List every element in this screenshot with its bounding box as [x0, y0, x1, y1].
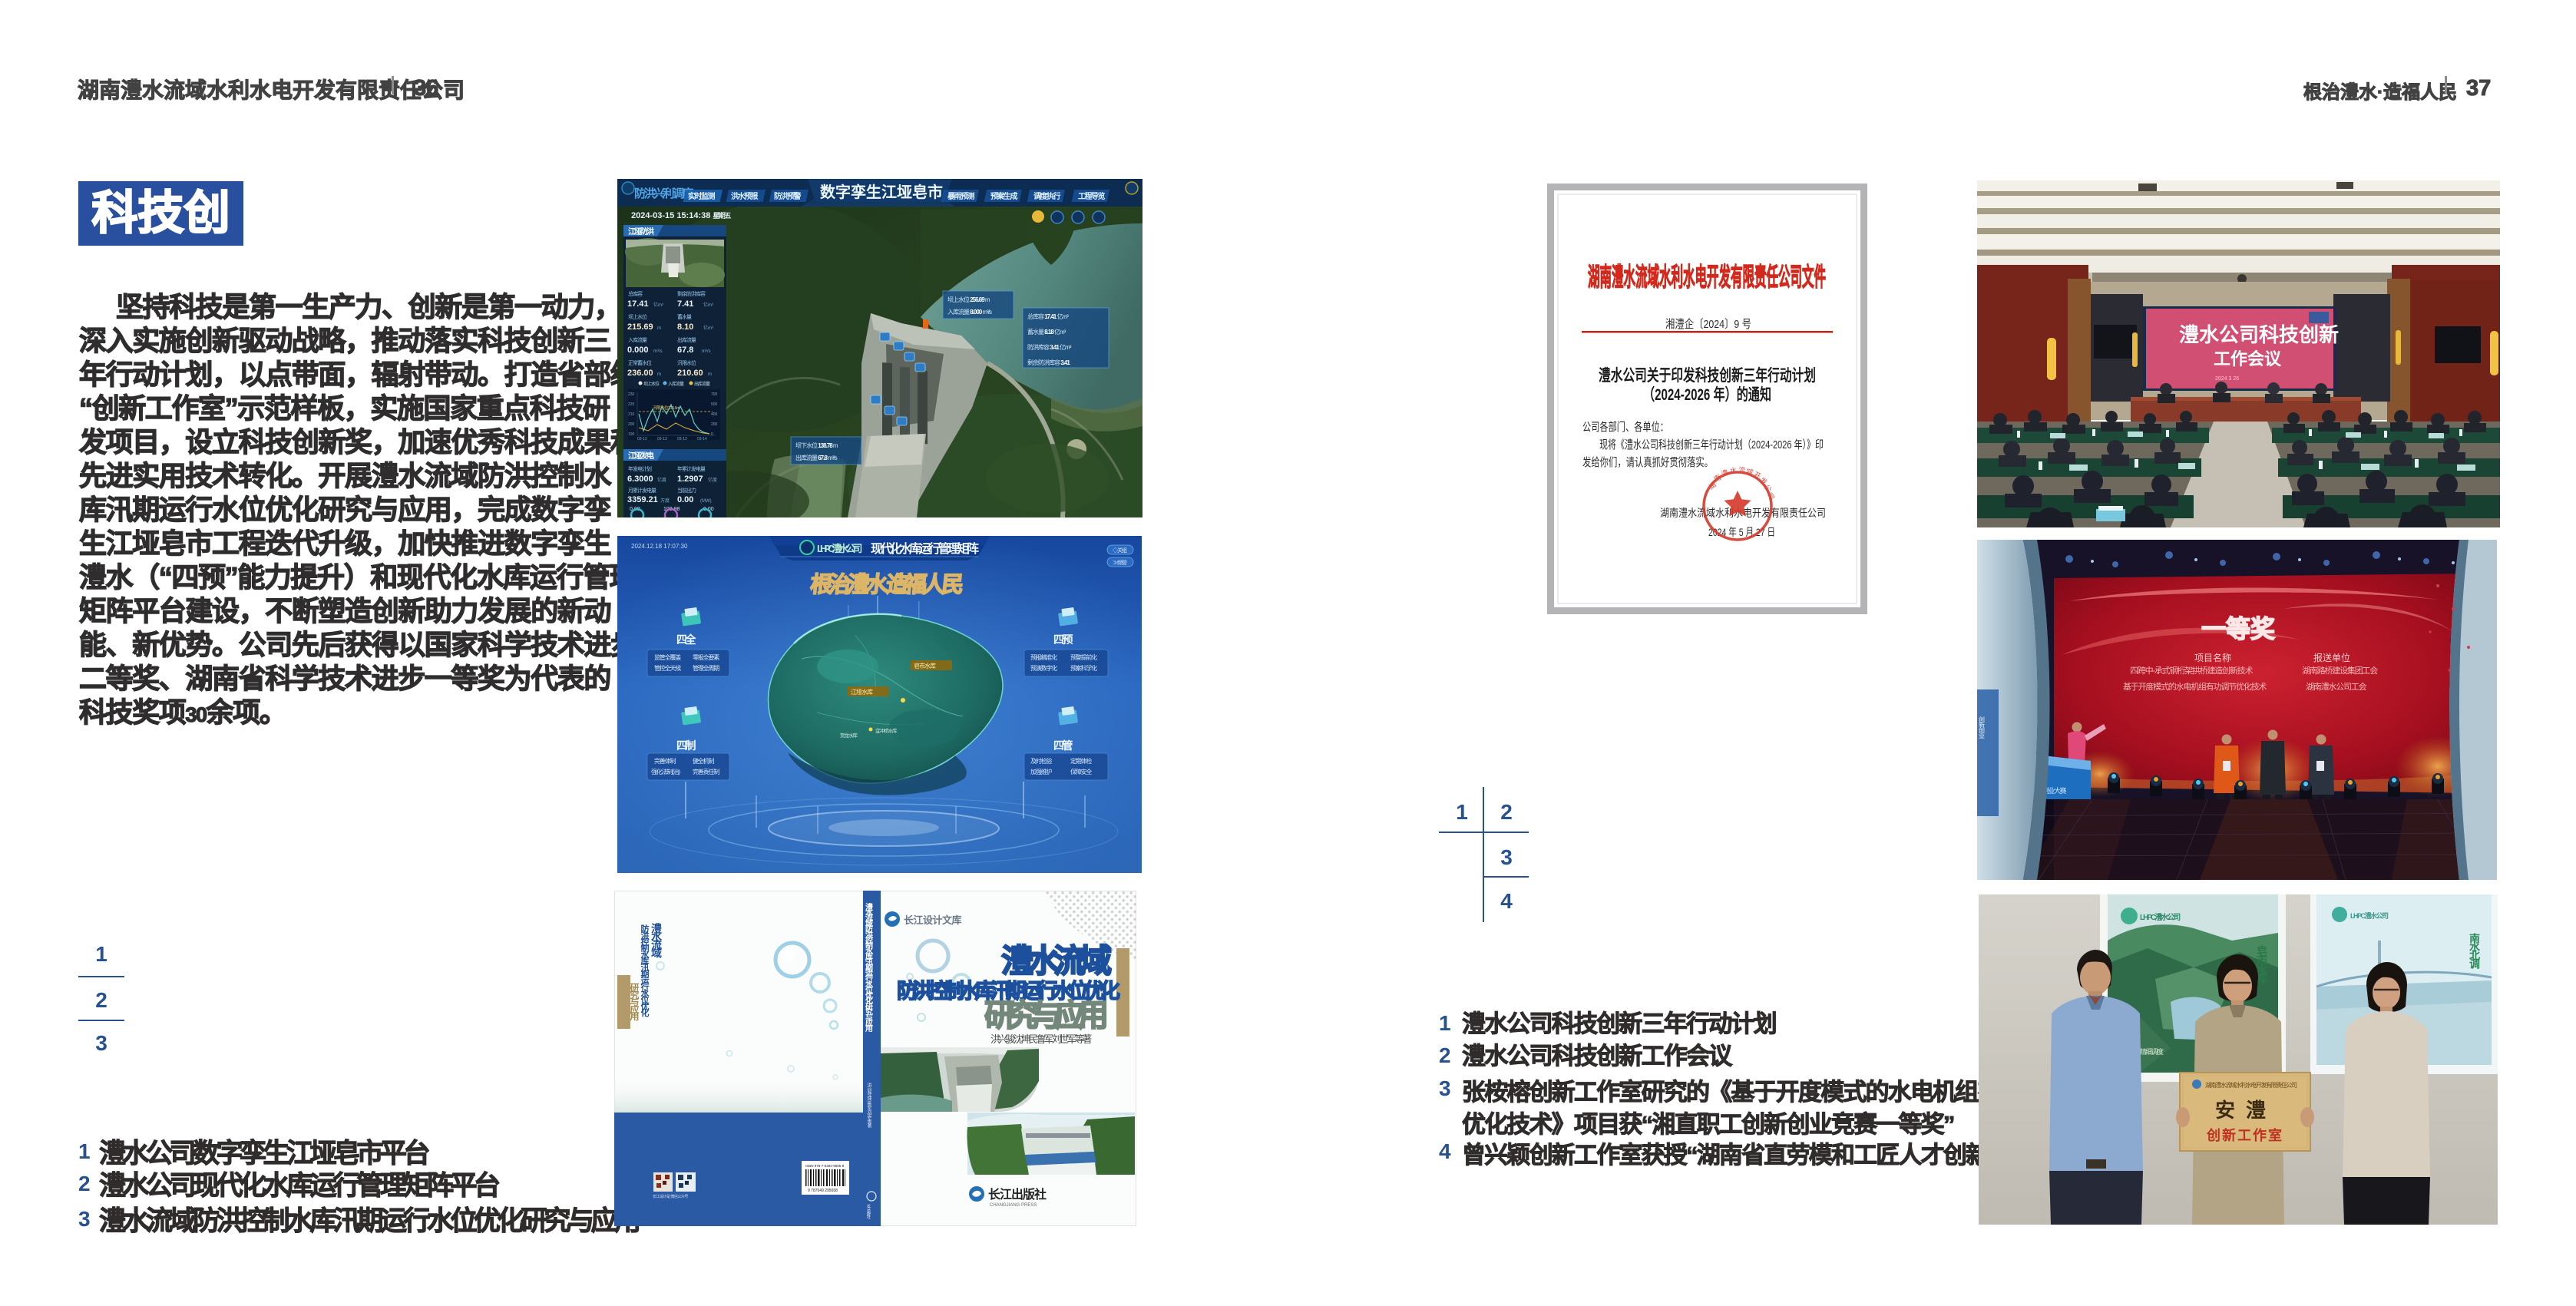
svg-text:管控全天候: 管控全天候	[654, 664, 681, 672]
svg-text:发给你们，请认真抓好贯彻落实。: 发给你们，请认真抓好贯彻落实。	[1582, 455, 1713, 469]
svg-text:四全: 四全	[676, 633, 696, 646]
svg-text:根治澧水 造福人民: 根治澧水 造福人民	[809, 572, 964, 597]
svg-text:入库流量: 入库流量	[668, 381, 684, 387]
svg-text:防洪预警: 防洪预警	[774, 191, 802, 201]
svg-text:210.60: 210.60	[677, 369, 703, 378]
svg-text:9 787549 295658: 9 787549 295658	[808, 1189, 838, 1193]
svg-text:洪兴骏 沈坤民 鲁军 刘世军 等著: 洪兴骏 沈坤民 鲁军 刘世军 等著	[990, 1033, 1092, 1045]
svg-text:暴雨预测: 暴雨预测	[947, 191, 975, 201]
svg-text:汛限水位210.6m: 汛限水位210.6m	[653, 405, 680, 411]
svg-text:预案科学化: 预案科学化	[1070, 664, 1097, 672]
svg-text:200: 200	[711, 422, 718, 427]
svg-text:湖南澧水流域水利水电开发有限责任公司: 湖南澧水流域水利水电开发有限责任公司	[2205, 1081, 2297, 1089]
svg-text:南水北调: 南水北调	[2469, 932, 2481, 970]
svg-text:亿m³: 亿m³	[653, 302, 663, 308]
svg-text:澧水流域: 澧水流域	[1001, 943, 1112, 979]
svg-text:7.41: 7.41	[677, 299, 693, 309]
svg-text:监管全覆盖: 监管全覆盖	[654, 653, 681, 661]
svg-text:流: 流	[1738, 465, 1746, 474]
svg-text:700: 700	[711, 392, 718, 397]
svg-text:m³/s: m³/s	[653, 349, 663, 354]
svg-text:研究与应用: 研究与应用	[984, 999, 1106, 1033]
svg-text:创新创业: 创新创业	[1979, 716, 1986, 739]
svg-text:及时检验: 及时检验	[1030, 757, 1052, 765]
svg-text:2024.12.18 17:07:30: 2024.12.18 17:07:30	[631, 543, 688, 550]
svg-text:亿m³: 亿m³	[703, 325, 713, 331]
svg-text:报送单位: 报送单位	[2313, 652, 2350, 663]
svg-text:（2024-2026 年）的通知: （2024-2026 年）的通知	[1643, 385, 1771, 404]
svg-text:LHPC澧水公司: LHPC澧水公司	[2140, 912, 2181, 922]
svg-text:现代化水库运行管理矩阵: 现代化水库运行管理矩阵	[871, 541, 979, 556]
svg-text:6.3000: 6.3000	[627, 474, 653, 484]
svg-text:亿m³: 亿m³	[703, 302, 713, 308]
svg-text:万度: 万度	[660, 498, 670, 504]
svg-text:长江设计是 微信公众号: 长江设计是 微信公众号	[653, 1194, 688, 1199]
svg-text:67.8: 67.8	[677, 346, 693, 355]
svg-text:坝上水位: 坝上水位	[643, 381, 660, 387]
svg-text:预报精准化: 预报精准化	[1030, 653, 1057, 661]
svg-text:220: 220	[628, 402, 635, 407]
svg-text:数字孪生江垭皂市: 数字孪生江垭皂市	[820, 183, 943, 201]
svg-text:长江出版社: 长江出版社	[988, 1187, 1047, 1202]
svg-text:强化法制(治): 强化法制(治)	[651, 768, 680, 775]
svg-text:当前出力: 当前出力	[677, 487, 696, 494]
svg-text:完善责任制: 完善责任制	[693, 768, 719, 775]
svg-text:2024 年 5 月 27 日: 2024 年 5 月 27 日	[1708, 526, 1775, 538]
svg-text:190: 190	[628, 432, 635, 437]
svg-text:坝上水位: 坝上水位	[628, 313, 647, 320]
svg-text:03-12: 03-12	[637, 437, 647, 441]
svg-text:0.00: 0.00	[677, 495, 693, 504]
svg-text:项目名称: 项目名称	[2194, 652, 2231, 663]
svg-text:0: 0	[711, 432, 713, 437]
svg-text:2024-03-15 15:14:38 星期五: 2024-03-15 15:14:38 星期五	[631, 211, 731, 220]
svg-text:澧水公司科技创新: 澧水公司科技创新	[2179, 323, 2339, 346]
svg-text:工作会议: 工作会议	[2214, 349, 2282, 369]
svg-text:工程导览: 工程导览	[1078, 191, 1106, 201]
svg-text:汛限水位: 汛限水位	[677, 359, 696, 366]
svg-text:年累计发电量: 年累计发电量	[677, 465, 706, 472]
svg-text:1.2907: 1.2907	[677, 474, 703, 484]
svg-text:03-14: 03-14	[697, 437, 707, 441]
svg-text:预案生成: 预案生成	[990, 191, 1018, 201]
svg-text:3359.21: 3359.21	[627, 495, 658, 504]
svg-text:2024 3 26: 2024 3 26	[2215, 376, 2239, 382]
svg-text:皂市水库: 皂市水库	[914, 662, 936, 670]
svg-text:剩余防洪库容 3.41: 剩余防洪库容 3.41	[1027, 359, 1070, 366]
svg-text:m³/s: m³/s	[702, 349, 711, 354]
svg-text:蓄水量 8.18 亿m³: 蓄水量 8.18 亿m³	[1027, 328, 1066, 336]
svg-text:蓄水量: 蓄水量	[677, 313, 692, 320]
svg-text:湖南澧水公司工会: 湖南澧水公司工会	[2306, 681, 2367, 692]
svg-text:水: 水	[1729, 465, 1737, 474]
svg-text:四管: 四管	[1053, 739, 1073, 752]
svg-text:贺龙水库: 贺龙水库	[840, 732, 858, 739]
svg-text:400: 400	[711, 412, 718, 417]
svg-text:澧水流域: 澧水流域	[650, 922, 663, 959]
svg-text:0.000: 0.000	[627, 346, 649, 355]
svg-text:长江出版社: 长江出版社	[866, 1203, 871, 1219]
svg-text:LHPC澧水公司: LHPC澧水公司	[2350, 911, 2389, 920]
svg-text:500: 500	[711, 402, 718, 407]
svg-text:03-13: 03-13	[677, 437, 687, 441]
svg-text:210: 210	[628, 412, 635, 417]
svg-text:研究与应用: 研究与应用	[629, 983, 640, 1022]
svg-text:◇关组: ◇关组	[1113, 547, 1127, 554]
svg-text:湖南澧水流域水利水电开发有限责任公司文件: 湖南澧水流域水利水电开发有限责任公司文件	[1588, 263, 1826, 291]
svg-text:亿度: 亿度	[708, 477, 717, 483]
svg-text:安澧: 安澧	[2215, 1099, 2277, 1122]
svg-text:剩余防洪库容: 剩余防洪库容	[677, 290, 706, 297]
svg-text:保障安全: 保障安全	[1070, 768, 1092, 775]
svg-text:坝上水位 256.69 m: 坝上水位 256.69 m	[947, 296, 990, 303]
svg-text:现将《澧水公司科技创新三年行动计划（2024-2026 年）: 现将《澧水公司科技创新三年行动计划（2024-2026 年）》印	[1599, 438, 1824, 451]
svg-text:200: 200	[628, 422, 635, 427]
svg-text:澧水公司关于印发科技创新三年行动计划: 澧水公司关于印发科技创新三年行动计划	[1599, 366, 1816, 385]
svg-text:基于开度模式的水电机组有功调节优化技术: 基于开度模式的水电机组有功调节优化技术	[2123, 681, 2267, 692]
svg-text:健全机制: 健全机制	[693, 757, 714, 765]
svg-text:四跨中-承式钢桁架拱桥建造创新技术: 四跨中-承式钢桁架拱桥建造创新技术	[2130, 665, 2253, 676]
svg-text:四制: 四制	[676, 739, 696, 752]
svg-text:m: m	[708, 372, 712, 377]
svg-text:管理全周期: 管理全周期	[693, 664, 719, 672]
svg-text:年发电计划: 年发电计划	[628, 465, 652, 472]
svg-text:防洪控制水库汛期运行水位优化: 防洪控制水库汛期运行水位优化	[640, 924, 650, 1017]
svg-text:江垭水库: 江垭水库	[851, 688, 873, 696]
svg-text:实时监测: 实时监测	[688, 191, 715, 201]
svg-text:完善体制: 完善体制	[654, 757, 676, 765]
svg-text:四预: 四预	[1053, 633, 1073, 646]
svg-text:湖南路桥建设集团工会: 湖南路桥建设集团工会	[2302, 665, 2378, 676]
svg-text:m: m	[657, 372, 661, 377]
svg-text:(MW): (MW)	[700, 499, 712, 504]
svg-text:215.69: 215.69	[627, 322, 653, 332]
svg-text:洪水预报: 洪水预报	[731, 191, 758, 201]
svg-text:坝下水位 138.78 m: 坝下水位 138.78 m	[795, 441, 838, 449]
svg-text:236.00: 236.00	[627, 369, 653, 378]
svg-text:江垭防洪: 江垭防洪	[628, 226, 654, 236]
svg-text:月累计发电量: 月累计发电量	[628, 487, 656, 494]
svg-text:长江设计文库: 长江设计文库	[904, 914, 962, 926]
svg-text:≫频管: ≫频管	[1113, 559, 1127, 566]
svg-text:入库流量 8.000 m³/s: 入库流量 8.000 m³/s	[947, 308, 992, 316]
svg-text:LHPC澧水公司: LHPC澧水公司	[817, 543, 861, 554]
svg-text:总库容 17.41 亿m³: 总库容 17.41 亿m³	[1027, 312, 1069, 320]
svg-text:预警提前化: 预警提前化	[1070, 653, 1097, 661]
svg-text:出库流量: 出库流量	[694, 381, 710, 387]
svg-text:一等奖: 一等奖	[2201, 615, 2275, 643]
svg-text:总库容: 总库容	[628, 290, 643, 297]
svg-text:加强维护: 加强维护	[1030, 768, 1052, 775]
svg-text:m: m	[657, 326, 661, 331]
svg-text:8.10: 8.10	[677, 322, 693, 332]
svg-text:17.41: 17.41	[627, 299, 649, 309]
svg-text:出库流量 67.8 m³/s: 出库流量 67.8 m³/s	[795, 454, 838, 461]
svg-text:亿度: 亿度	[657, 477, 666, 483]
svg-text:230: 230	[628, 392, 635, 397]
svg-text:入库流量: 入库流量	[628, 336, 647, 343]
svg-text:创新工作室: 创新工作室	[2206, 1127, 2283, 1143]
svg-text:ISBN 978-7-5492-9565-8: ISBN 978-7-5492-9565-8	[805, 1164, 845, 1168]
svg-text:03-13: 03-13	[657, 437, 667, 441]
svg-text:湘澧企〔2024〕9 号: 湘澧企〔2024〕9 号	[1665, 317, 1751, 331]
svg-text:宜冲桥水库: 宜冲桥水库	[875, 727, 898, 734]
svg-text:洪兴骏 沈坤民 鲁军 刘世军 等著: 洪兴骏 沈坤民 鲁军 刘世军 等著	[866, 1082, 871, 1129]
svg-text:正常蓄水位: 正常蓄水位	[628, 359, 652, 366]
svg-text:防洪库容 3.41 亿m³: 防洪库容 3.41 亿m³	[1027, 343, 1072, 351]
svg-text:定期体检: 定期体检	[1070, 757, 1092, 765]
svg-text:江垭发电: 江垭发电	[628, 451, 654, 461]
svg-text:CHANGJIANG PRESS: CHANGJIANG PRESS	[990, 1203, 1037, 1208]
svg-text:公司各部门、各单位：: 公司各部门、各单位：	[1582, 421, 1668, 434]
svg-text:出库流量: 出库流量	[677, 336, 696, 343]
svg-text:调度执行: 调度执行	[1033, 191, 1061, 201]
svg-text:零报全要素: 零报全要素	[693, 653, 719, 661]
svg-text:预演数字化: 预演数字化	[1030, 664, 1057, 672]
